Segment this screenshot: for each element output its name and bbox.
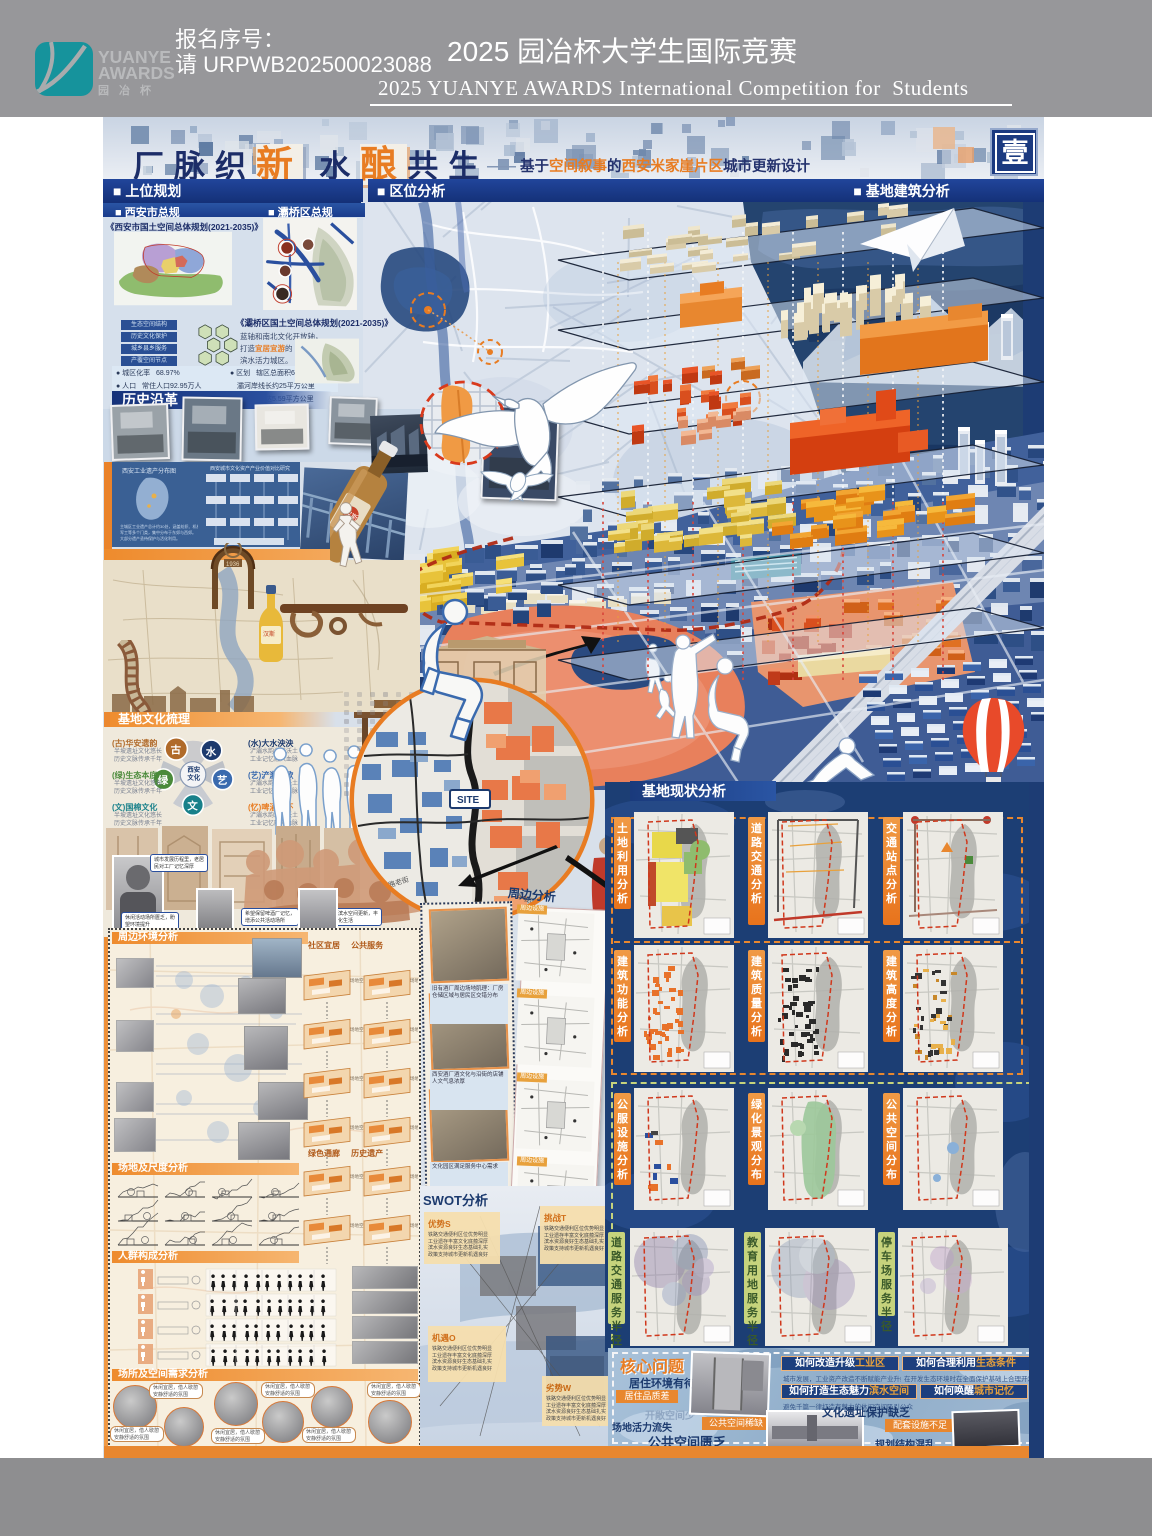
- svg-text:主城区工业遗产总计约30处，涵盖纺织、机械、: 主城区工业遗产总计约30处，涵盖纺织、机械、: [120, 523, 198, 529]
- svg-text:汉斯: 汉斯: [263, 630, 275, 638]
- svg-text:水: 水: [206, 745, 217, 758]
- svg-text:西安城市文化资产产业价值对比研究: 西安城市文化资产产业价值对比研究: [210, 465, 290, 472]
- svg-text:文: 文: [186, 800, 198, 813]
- svg-text:1936: 1936: [226, 562, 240, 568]
- svg-text:场地空间肌理优化: 场地空间肌理优化: [410, 1173, 418, 1180]
- svg-text:大部分遗产亟待保护与活化利用。: 大部分遗产亟待保护与活化利用。: [120, 535, 180, 541]
- svg-text:SITE: SITE: [457, 795, 480, 806]
- svg-text:军工等多个门类，集中分布于东郊与西郊。: 军工等多个门类，集中分布于东郊与西郊。: [120, 529, 196, 535]
- svg-text:场地空间肌理优化: 场地空间肌理优化: [410, 1075, 418, 1082]
- svg-text:文化: 文化: [187, 772, 200, 781]
- svg-text:古: 古: [171, 744, 182, 757]
- svg-text:场地空间肌理优化: 场地空间肌理优化: [410, 1222, 418, 1229]
- svg-text:西安工业遗产分布图: 西安工业遗产分布图: [122, 467, 176, 475]
- svg-text:场地空间肌理优化: 场地空间肌理优化: [410, 1026, 418, 1033]
- svg-text:艺: 艺: [217, 774, 227, 787]
- svg-text:场地空间肌理优化: 场地空间肌理优化: [410, 977, 418, 984]
- svg-text:场地空间肌理优化: 场地空间肌理优化: [410, 1124, 418, 1131]
- svg-text:西安: 西安: [187, 764, 200, 773]
